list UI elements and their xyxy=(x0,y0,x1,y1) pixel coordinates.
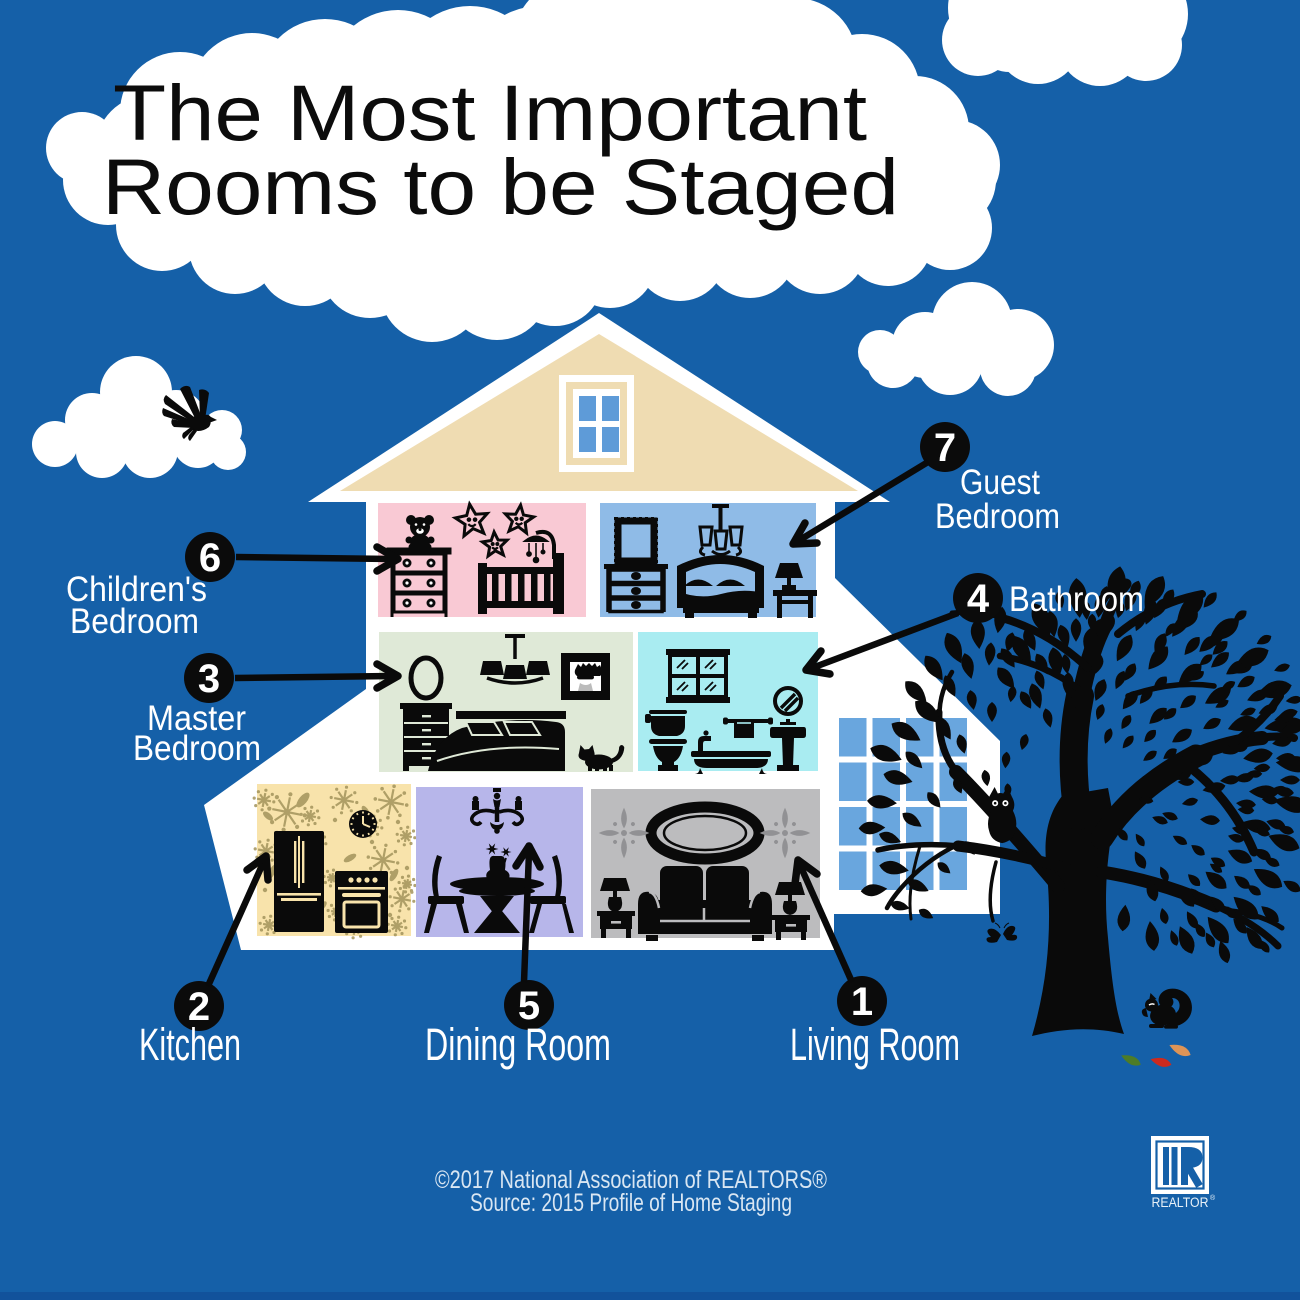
svg-text:7: 7 xyxy=(934,426,956,470)
svg-text:Bedroom: Bedroom xyxy=(935,497,1060,536)
svg-text:®: ® xyxy=(1210,1194,1216,1202)
svg-text:REALTOR: REALTOR xyxy=(1152,1195,1209,1210)
svg-text:Kitchen: Kitchen xyxy=(139,1019,241,1070)
svg-text:Living Room: Living Room xyxy=(790,1019,960,1070)
svg-text:Source: 2015 Profile of Home S: Source: 2015 Profile of Home Staging xyxy=(470,1189,792,1217)
svg-text:3: 3 xyxy=(198,657,220,701)
svg-text:Dining Room: Dining Room xyxy=(425,1019,611,1070)
svg-text:Rooms to be Staged: Rooms to be Staged xyxy=(102,142,899,231)
svg-text:4: 4 xyxy=(967,577,990,621)
svg-text:Bedroom: Bedroom xyxy=(133,729,261,768)
svg-text:Bathroom: Bathroom xyxy=(1009,580,1144,619)
svg-text:Bedroom: Bedroom xyxy=(70,602,199,641)
svg-text:1: 1 xyxy=(851,980,873,1024)
